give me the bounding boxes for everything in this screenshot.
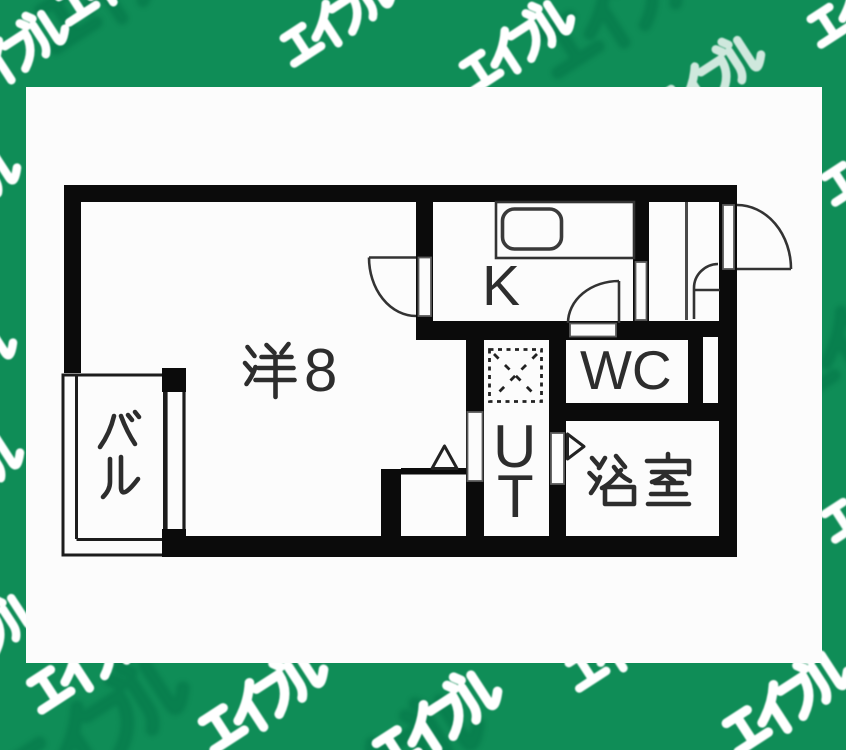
svg-text:T: T <box>497 463 534 530</box>
svg-text:K: K <box>482 254 520 318</box>
svg-text:WC: WC <box>580 339 672 401</box>
svg-text:8: 8 <box>304 337 337 404</box>
